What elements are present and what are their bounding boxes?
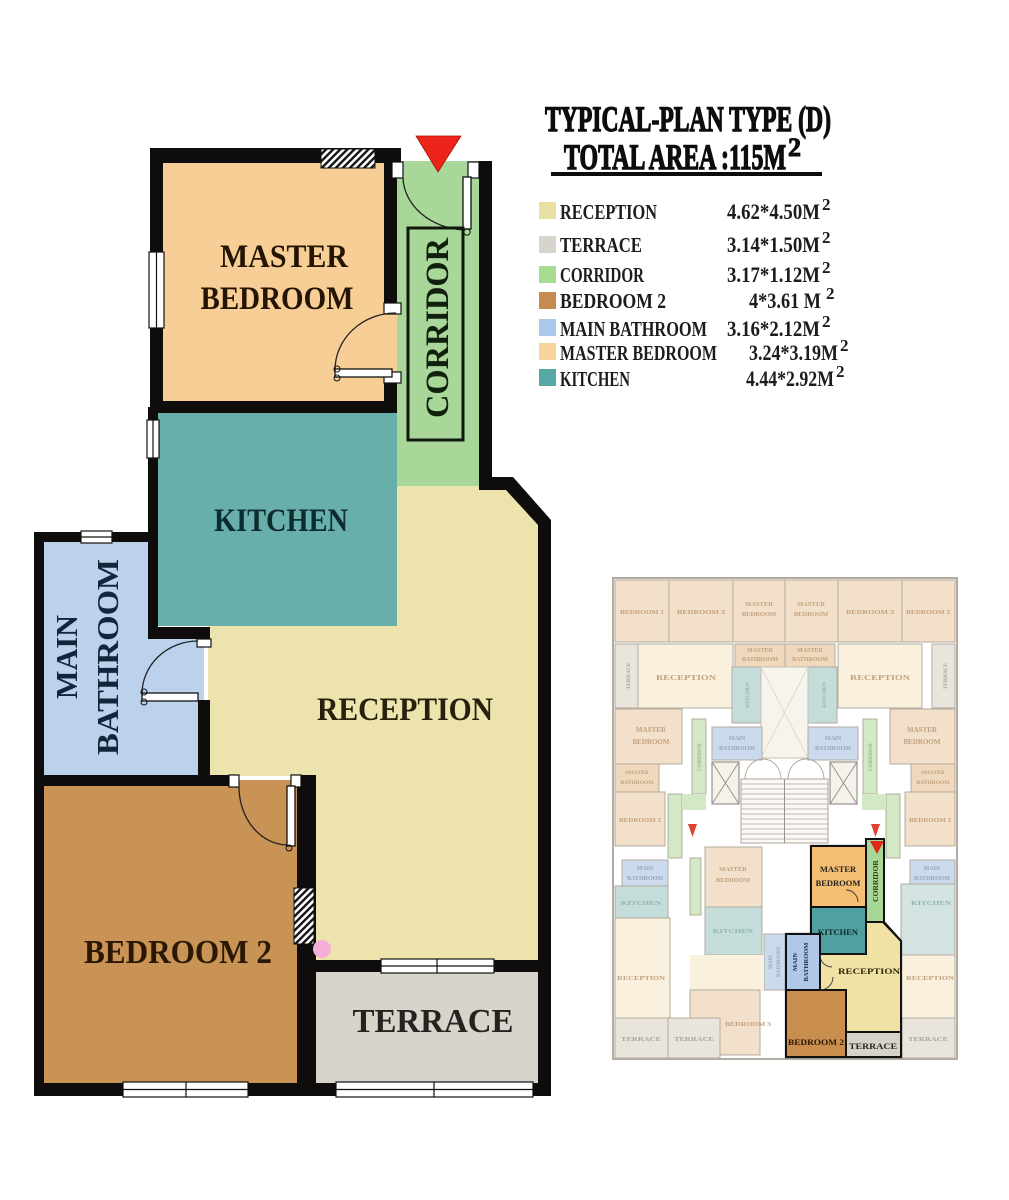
svg-text:TERRACE: TERRACE [908, 1037, 948, 1043]
svg-text:BEDROOM: BEDROOM [742, 611, 776, 618]
svg-text:4.44*2.92M: 4.44*2.92M [746, 366, 834, 391]
svg-text:BATHROOM: BATHROOM [792, 657, 828, 663]
svg-text:MASTER BEDROOM: MASTER BEDROOM [560, 341, 717, 365]
svg-text:KITCHEN: KITCHEN [214, 503, 348, 539]
svg-text:BEDROOM: BEDROOM [794, 611, 828, 618]
svg-text:KITCHEN: KITCHEN [911, 900, 951, 907]
svg-text:BATHROOM: BATHROOM [803, 943, 810, 982]
svg-text:RECEPTION: RECEPTION [906, 975, 954, 982]
svg-text:KITCHEN: KITCHEN [822, 682, 828, 708]
svg-text:BEDROOM 1: BEDROOM 1 [620, 609, 664, 616]
svg-text:2: 2 [840, 336, 849, 355]
svg-text:BEDROOM: BEDROOM [716, 877, 750, 884]
svg-text:MASTER: MASTER [636, 726, 667, 734]
svg-text:TERRACE: TERRACE [621, 1037, 661, 1043]
svg-text:TERRACE: TERRACE [560, 233, 642, 257]
svg-text:RECEPTION: RECEPTION [850, 674, 910, 682]
svg-text:4.62*4.50M: 4.62*4.50M [727, 199, 820, 224]
svg-text:BATHROOM: BATHROOM [90, 559, 125, 755]
svg-text:3.24*3.19M: 3.24*3.19M [749, 340, 838, 365]
svg-text:MASTER: MASTER [745, 601, 773, 608]
svg-text:BEDROOM: BEDROOM [633, 738, 670, 746]
svg-text:MAIN: MAIN [792, 953, 799, 971]
svg-text:TERRACE: TERRACE [626, 662, 632, 689]
svg-text:3.17*1.12M: 3.17*1.12M [727, 262, 820, 287]
svg-text:3.14*1.50M: 3.14*1.50M [727, 232, 820, 257]
svg-text:BATHROOM: BATHROOM [621, 780, 655, 786]
svg-text:BEDROOM 2: BEDROOM 2 [619, 817, 661, 824]
svg-text:KITCHEN: KITCHEN [713, 928, 753, 935]
svg-text:RECEPTION: RECEPTION [560, 200, 657, 224]
svg-text:MAIN: MAIN [637, 866, 654, 872]
svg-text:TERRACE: TERRACE [353, 1003, 514, 1040]
svg-text:BATHROOM: BATHROOM [742, 657, 778, 663]
svg-text:MASTER: MASTER [747, 648, 773, 654]
svg-text:CORRIDOR: CORRIDOR [869, 743, 874, 771]
svg-text:CORRIDOR: CORRIDOR [560, 263, 645, 287]
svg-text:MASTER: MASTER [921, 770, 946, 776]
svg-text:2: 2 [822, 228, 831, 247]
svg-text:BEDROOM 3: BEDROOM 3 [846, 609, 895, 616]
svg-text:RECEPTION: RECEPTION [656, 674, 716, 682]
svg-text:KITCHEN: KITCHEN [621, 900, 661, 907]
svg-text:2: 2 [822, 258, 831, 277]
svg-text:TOTAL AREA :115M: TOTAL AREA :115M [564, 137, 786, 177]
svg-text:BATHROOM: BATHROOM [914, 876, 950, 882]
svg-text:BEDROOM 2: BEDROOM 2 [560, 289, 666, 313]
svg-text:MASTER: MASTER [719, 866, 747, 873]
svg-text:2: 2 [836, 362, 845, 381]
svg-text:2: 2 [822, 195, 831, 214]
svg-text:BATHROOM: BATHROOM [917, 780, 951, 786]
svg-text:CORRIDOR: CORRIDOR [420, 237, 456, 418]
svg-text:BEDROOM: BEDROOM [201, 281, 354, 317]
svg-text:RECEPTION: RECEPTION [617, 975, 665, 982]
svg-text:TERRACE: TERRACE [674, 1037, 714, 1043]
svg-text:BEDROOM 2: BEDROOM 2 [84, 934, 272, 971]
svg-text:BEDROOM 2: BEDROOM 2 [906, 609, 950, 616]
svg-text:BATHROOM: BATHROOM [815, 746, 851, 752]
svg-text:MAIN: MAIN [924, 866, 941, 872]
svg-text:CORRIDOR: CORRIDOR [871, 860, 880, 902]
svg-text:MAIN: MAIN [729, 736, 746, 742]
svg-text:TERRACE: TERRACE [943, 662, 949, 689]
svg-text:MASTER: MASTER [820, 864, 857, 874]
svg-text:MASTER: MASTER [625, 770, 650, 776]
svg-text:BATHROOM: BATHROOM [627, 876, 663, 882]
svg-text:2: 2 [826, 284, 835, 303]
svg-text:KITCHEN: KITCHEN [745, 682, 751, 708]
svg-text:RECEPTION: RECEPTION [317, 692, 493, 728]
svg-text:MASTER: MASTER [907, 726, 938, 734]
svg-text:KITCHEN: KITCHEN [560, 367, 630, 391]
svg-text:3.16*2.12M: 3.16*2.12M [727, 316, 820, 341]
svg-text:MASTER: MASTER [220, 239, 349, 275]
svg-text:BEDROOM 2: BEDROOM 2 [788, 1038, 844, 1047]
svg-text:BEDROOM: BEDROOM [904, 738, 941, 746]
svg-text:MASTER: MASTER [797, 648, 823, 654]
svg-text:KITCHEN: KITCHEN [818, 927, 859, 937]
svg-text:BATHROOM: BATHROOM [777, 947, 782, 977]
svg-text:BEDROOM 3: BEDROOM 3 [725, 1021, 772, 1028]
svg-text:CORRIDOR: CORRIDOR [698, 743, 703, 771]
svg-text:RECEPTION: RECEPTION [838, 967, 900, 976]
svg-text:MAIN BATHROOM: MAIN BATHROOM [560, 317, 707, 341]
svg-text:MAIN: MAIN [769, 955, 774, 969]
svg-text:BEDROOM 3: BEDROOM 3 [677, 609, 726, 616]
svg-text:MAIN: MAIN [825, 736, 842, 742]
svg-text:2: 2 [822, 312, 831, 331]
svg-text:BEDROOM: BEDROOM [816, 878, 861, 888]
svg-text:2: 2 [788, 133, 801, 162]
svg-text:MASTER: MASTER [797, 601, 825, 608]
svg-text:BEDROOM 2: BEDROOM 2 [909, 817, 951, 824]
svg-text:TERRACE: TERRACE [849, 1042, 897, 1051]
svg-text:MAIN: MAIN [49, 615, 84, 699]
svg-text:4*3.61 M: 4*3.61 M [749, 288, 821, 313]
svg-text:BATHROOM: BATHROOM [719, 746, 755, 752]
